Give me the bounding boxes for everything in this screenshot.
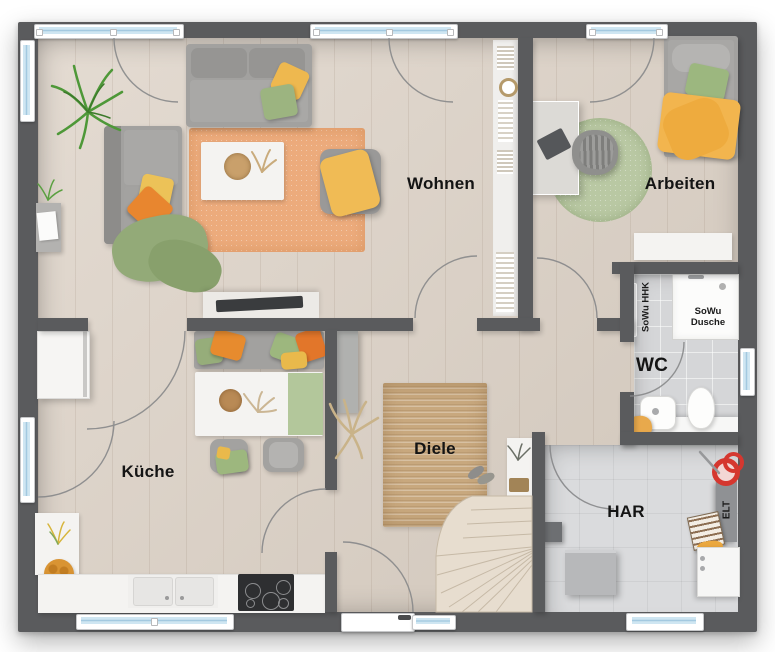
wc-floor [634, 274, 738, 432]
har-floor [545, 445, 738, 612]
floorplan-page: Wohnen Arbeiten Küche Diele WC HAR SoWu … [0, 0, 775, 652]
